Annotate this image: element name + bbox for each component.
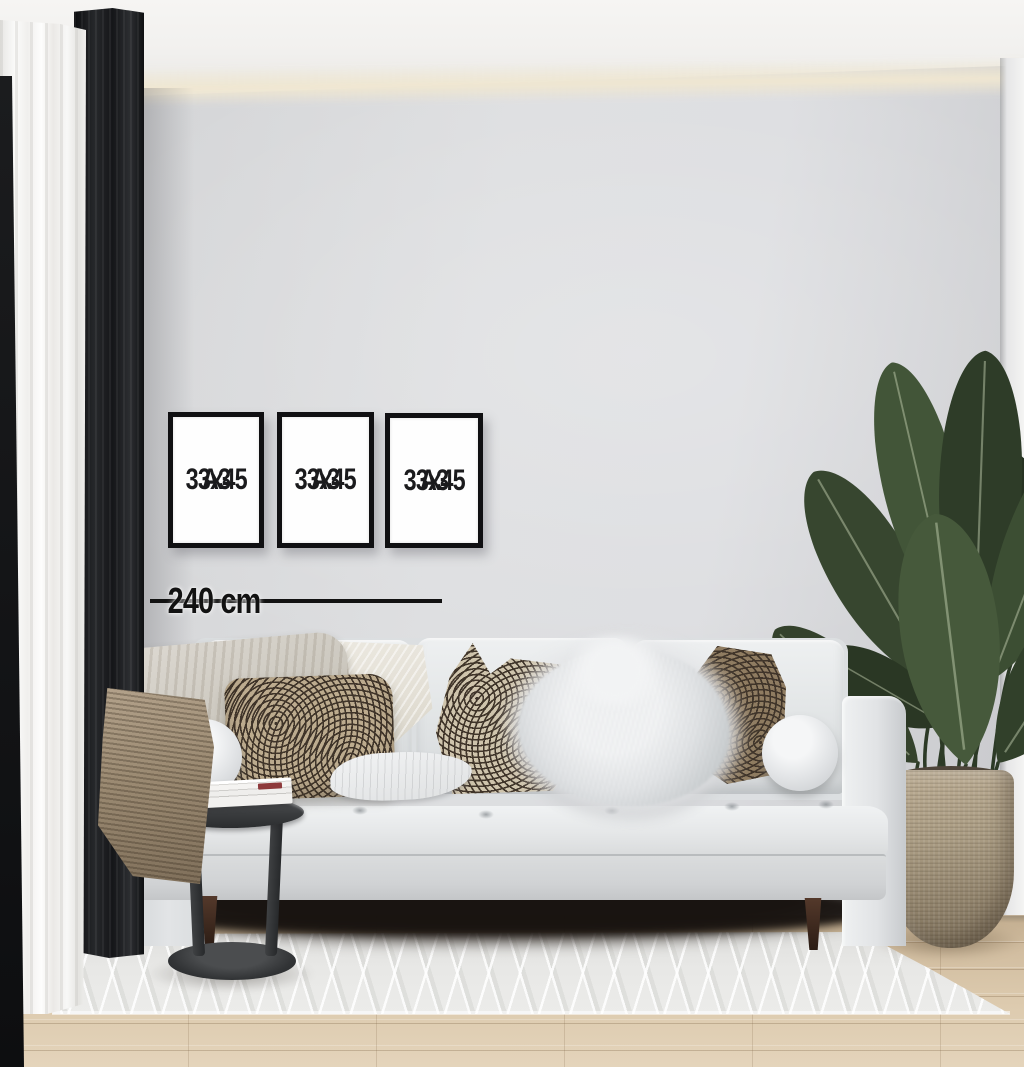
poster-frame-2: 33x45 A3: [277, 412, 374, 548]
rug-front-edge: [30, 1011, 1015, 1015]
fur-pillow-highlight: [560, 636, 670, 706]
measurement-annotation: 240 cm: [150, 582, 856, 620]
sofa-skirt: [130, 854, 886, 900]
living-room-mockup: 33x45 A3 33x45 A3 33x45 A3 240 cm: [0, 0, 1024, 1067]
seat-tuft: [818, 800, 834, 809]
frame-format-label: A3: [311, 464, 339, 495]
seat-tuft: [352, 806, 368, 815]
sofa-leg: [800, 898, 826, 950]
seat-tuft: [604, 806, 620, 815]
poster-frame-3: 33x45 A3: [385, 413, 483, 548]
bolster-pillow-right: [762, 715, 838, 791]
seat-tuft: [724, 802, 740, 811]
frame-format-label: A3: [420, 465, 448, 496]
measurement-label: 240 cm: [168, 580, 261, 622]
poster-frame-1: 33x45 A3: [168, 412, 264, 548]
frame-format-label: A3: [202, 464, 230, 495]
seat-tuft: [478, 810, 494, 819]
magazine-cover-accent: [258, 782, 282, 789]
